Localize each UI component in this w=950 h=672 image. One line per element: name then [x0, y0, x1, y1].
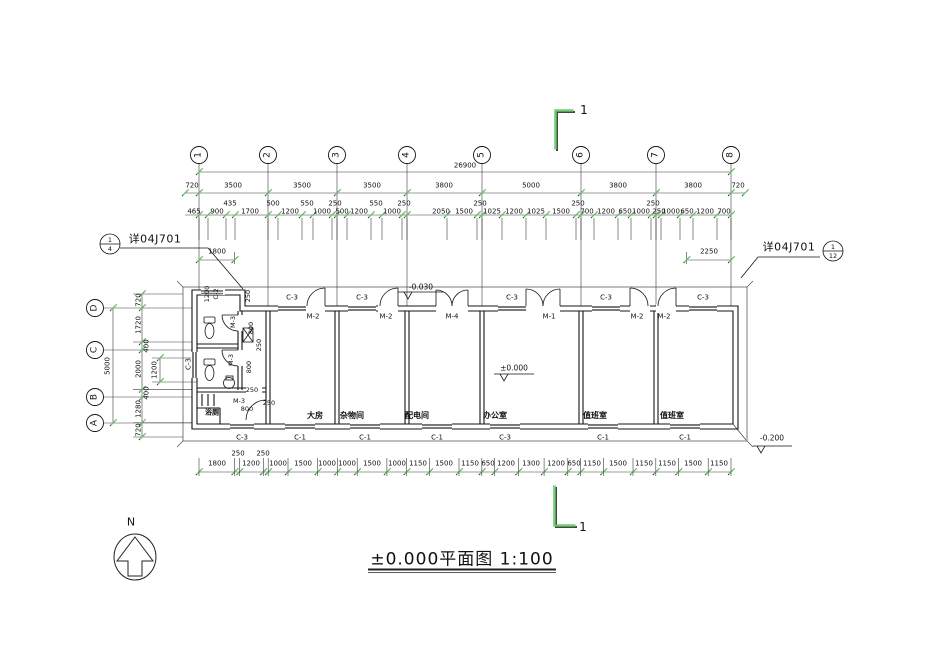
- bottom-dim: 1150: [461, 461, 479, 468]
- detail-dim: 700: [717, 209, 730, 216]
- bottom-dim: 1500: [609, 461, 627, 468]
- bottom-dim: 1800: [208, 461, 226, 468]
- window-label: C-3: [600, 295, 612, 302]
- window-label: C-3: [286, 295, 298, 302]
- toilet-dim-250d: 250: [246, 387, 258, 394]
- detail-dim: 1000: [632, 209, 650, 216]
- left-callout-num: 1: [108, 237, 112, 244]
- toilet-dim-1200: 1200: [204, 286, 211, 303]
- door-label: M-2: [379, 314, 392, 321]
- toilet-door-m3c: M-3: [233, 398, 245, 405]
- elevation-outside: -0.200: [760, 434, 784, 442]
- overall-dim: 26900: [454, 163, 476, 170]
- bottom-dim: 1500: [363, 461, 381, 468]
- detail-dim: 465: [187, 209, 200, 216]
- bottom-dim: 1000: [269, 461, 287, 468]
- detail-dim: 250: [328, 201, 341, 208]
- detail-dim: 700: [580, 209, 593, 216]
- detail-dim: 250: [473, 201, 486, 208]
- detail-dim: 1700: [241, 209, 259, 216]
- room-label: 大房: [307, 412, 323, 420]
- grid-number: 8: [727, 152, 736, 158]
- grid-number: 3: [333, 152, 342, 158]
- window-label: C-1: [597, 435, 609, 442]
- left-inner-dim: 1200: [152, 361, 159, 379]
- bottom-dim: 1500: [435, 461, 453, 468]
- drawing-title: ±0.000平面图 1:100: [370, 545, 553, 570]
- bottom-dim: 1300: [522, 461, 540, 468]
- window-label: C-1: [294, 435, 306, 442]
- detail-dim: 650: [618, 209, 631, 216]
- grid-number: 5: [478, 152, 487, 158]
- axis-dim: 3500: [293, 183, 311, 190]
- axis-dim: 3800: [435, 183, 453, 190]
- axis-dim: 3500: [224, 183, 242, 190]
- detail-dim: 1000: [313, 209, 331, 216]
- detail-dim: 1200: [505, 209, 523, 216]
- bottom-dim: 250: [256, 451, 269, 458]
- detail-dim: 1200: [597, 209, 615, 216]
- window-label: C-3: [356, 295, 368, 302]
- bottom-dim: 1150: [635, 461, 653, 468]
- bottom-dim: 650: [567, 461, 580, 468]
- detail-dim: 1500: [552, 209, 570, 216]
- toilet-door-m3a: M-3: [230, 316, 237, 328]
- axis-dim: 3500: [363, 183, 381, 190]
- bay-window-label: C-2: [213, 288, 220, 299]
- detail-dim: 1200: [350, 209, 368, 216]
- bottom-dim: 1200: [547, 461, 565, 468]
- grid-number: 1: [195, 152, 204, 158]
- bottom-dim: 1500: [684, 461, 702, 468]
- room-label: 杂物间: [340, 412, 364, 420]
- toilet-dim-800a: 800: [248, 322, 255, 334]
- north-label: N: [127, 517, 135, 528]
- grid-letter: C: [91, 347, 100, 353]
- north-arrow-icon: [114, 534, 156, 580]
- window-label: C-3: [236, 435, 248, 442]
- bottom-dim: 1150: [658, 461, 676, 468]
- detail-dim: 1000: [383, 209, 401, 216]
- toilet-door-m3b: M-3: [228, 354, 235, 366]
- window-label: C-3: [499, 435, 511, 442]
- toilet-dim-800b: 800: [246, 361, 253, 373]
- grid-number: 2: [264, 152, 273, 158]
- toilet-dim-250a: 250: [245, 290, 252, 302]
- room-label: 值班室: [583, 412, 607, 420]
- left-dim: 1280: [136, 400, 143, 418]
- section-mark-bottom-number: 1: [579, 521, 587, 533]
- grid-number: 6: [577, 152, 586, 158]
- toilet-room-label: 浴厕: [205, 410, 219, 417]
- grid-letter: B: [91, 394, 100, 400]
- left-window-label: C-3: [186, 358, 193, 370]
- left-callout-ref: 详04J701: [129, 234, 182, 245]
- porch-dim-1800: 1800: [208, 249, 226, 256]
- bottom-dim: 1200: [497, 461, 515, 468]
- right-callout-num: 1: [831, 244, 835, 251]
- detail-dim: 435: [223, 201, 236, 208]
- right-callout-ref: 详04J701: [763, 242, 816, 253]
- door-label: M-2: [306, 314, 319, 321]
- door-label: M-2: [657, 314, 670, 321]
- detail-dim: 550: [369, 201, 382, 208]
- detail-dim: 1500: [455, 209, 473, 216]
- left-dim: 400: [144, 386, 151, 399]
- door-label: M-2: [630, 314, 643, 321]
- callout-marks: [100, 234, 843, 289]
- detail-dim: 1200: [696, 209, 714, 216]
- detail-dim: 900: [210, 209, 223, 216]
- floor-plan-sheet: 12345678 DCBA 26900 72035003500350038005…: [0, 0, 950, 672]
- bottom-dim: 1000: [318, 461, 336, 468]
- axis-dim: 720: [731, 183, 744, 190]
- axis-dim: 720: [185, 183, 198, 190]
- toilet-dim-250c: 250: [263, 400, 275, 407]
- bottom-dim: 1000: [338, 461, 356, 468]
- window-label: C-3: [506, 295, 518, 302]
- detail-dim: 250: [646, 201, 659, 208]
- plan-linework: [0, 0, 950, 672]
- porch-dim-2250: 2250: [700, 249, 718, 256]
- bottom-dim: 1200: [242, 461, 260, 468]
- bottom-dim: 1000: [388, 461, 406, 468]
- bottom-dim: 250: [231, 451, 244, 458]
- toilet-dim-800c: 800: [241, 406, 253, 413]
- detail-dim: 1025: [527, 209, 545, 216]
- room-label: 办公室: [483, 412, 507, 420]
- detail-dim: 1025: [483, 209, 501, 216]
- toilet-dim-250b: 250: [256, 339, 263, 351]
- axis-dim: 3800: [609, 183, 627, 190]
- window-label: C-3: [697, 295, 709, 302]
- left-dim: 1720: [136, 316, 143, 334]
- detail-dim: 1000: [662, 209, 680, 216]
- left-dim: 720: [136, 293, 143, 306]
- grid-letter: A: [91, 420, 100, 426]
- grid-number: 7: [652, 152, 661, 158]
- door-label: M-1: [542, 314, 555, 321]
- elevation-floor: ±0.000: [500, 364, 528, 372]
- window-label: C-1: [679, 435, 691, 442]
- room-label: 值班室: [660, 412, 684, 420]
- section-mark-top-number: 1: [580, 104, 588, 116]
- bottom-dim: 1500: [294, 461, 312, 468]
- right-callout-sheet: 12: [829, 253, 837, 260]
- axis-dim: 3800: [684, 183, 702, 190]
- bottom-dim: 650: [481, 461, 494, 468]
- left-dim: 2000: [136, 360, 143, 378]
- door-label: M-4: [445, 314, 458, 321]
- left-overall-dim: 5000: [105, 357, 112, 375]
- bottom-dim: 1150: [409, 461, 427, 468]
- grid-letter: D: [91, 305, 100, 312]
- title-underline: [368, 570, 556, 573]
- left-callout-sheet: 4: [108, 246, 112, 253]
- detail-dim: 650: [680, 209, 693, 216]
- detail-dim: 1200: [281, 209, 299, 216]
- detail-dim: 250: [571, 201, 584, 208]
- axis-dim: 5000: [522, 183, 540, 190]
- detail-dim: 2050: [432, 209, 450, 216]
- detail-dim: 250: [397, 201, 410, 208]
- detail-dim: 500: [266, 201, 279, 208]
- window-label: C-1: [359, 435, 371, 442]
- elevation-entry: -0.030: [409, 283, 433, 291]
- room-label: 配电间: [405, 412, 429, 420]
- bottom-dim: 1150: [710, 461, 728, 468]
- left-dim: 720: [136, 423, 143, 436]
- grid-number: 4: [403, 152, 412, 158]
- left-dim: 400: [144, 339, 151, 352]
- detail-dim: 550: [300, 201, 313, 208]
- window-label: C-1: [431, 435, 443, 442]
- detail-dim: 500: [335, 209, 348, 216]
- bottom-dim: 1150: [583, 461, 601, 468]
